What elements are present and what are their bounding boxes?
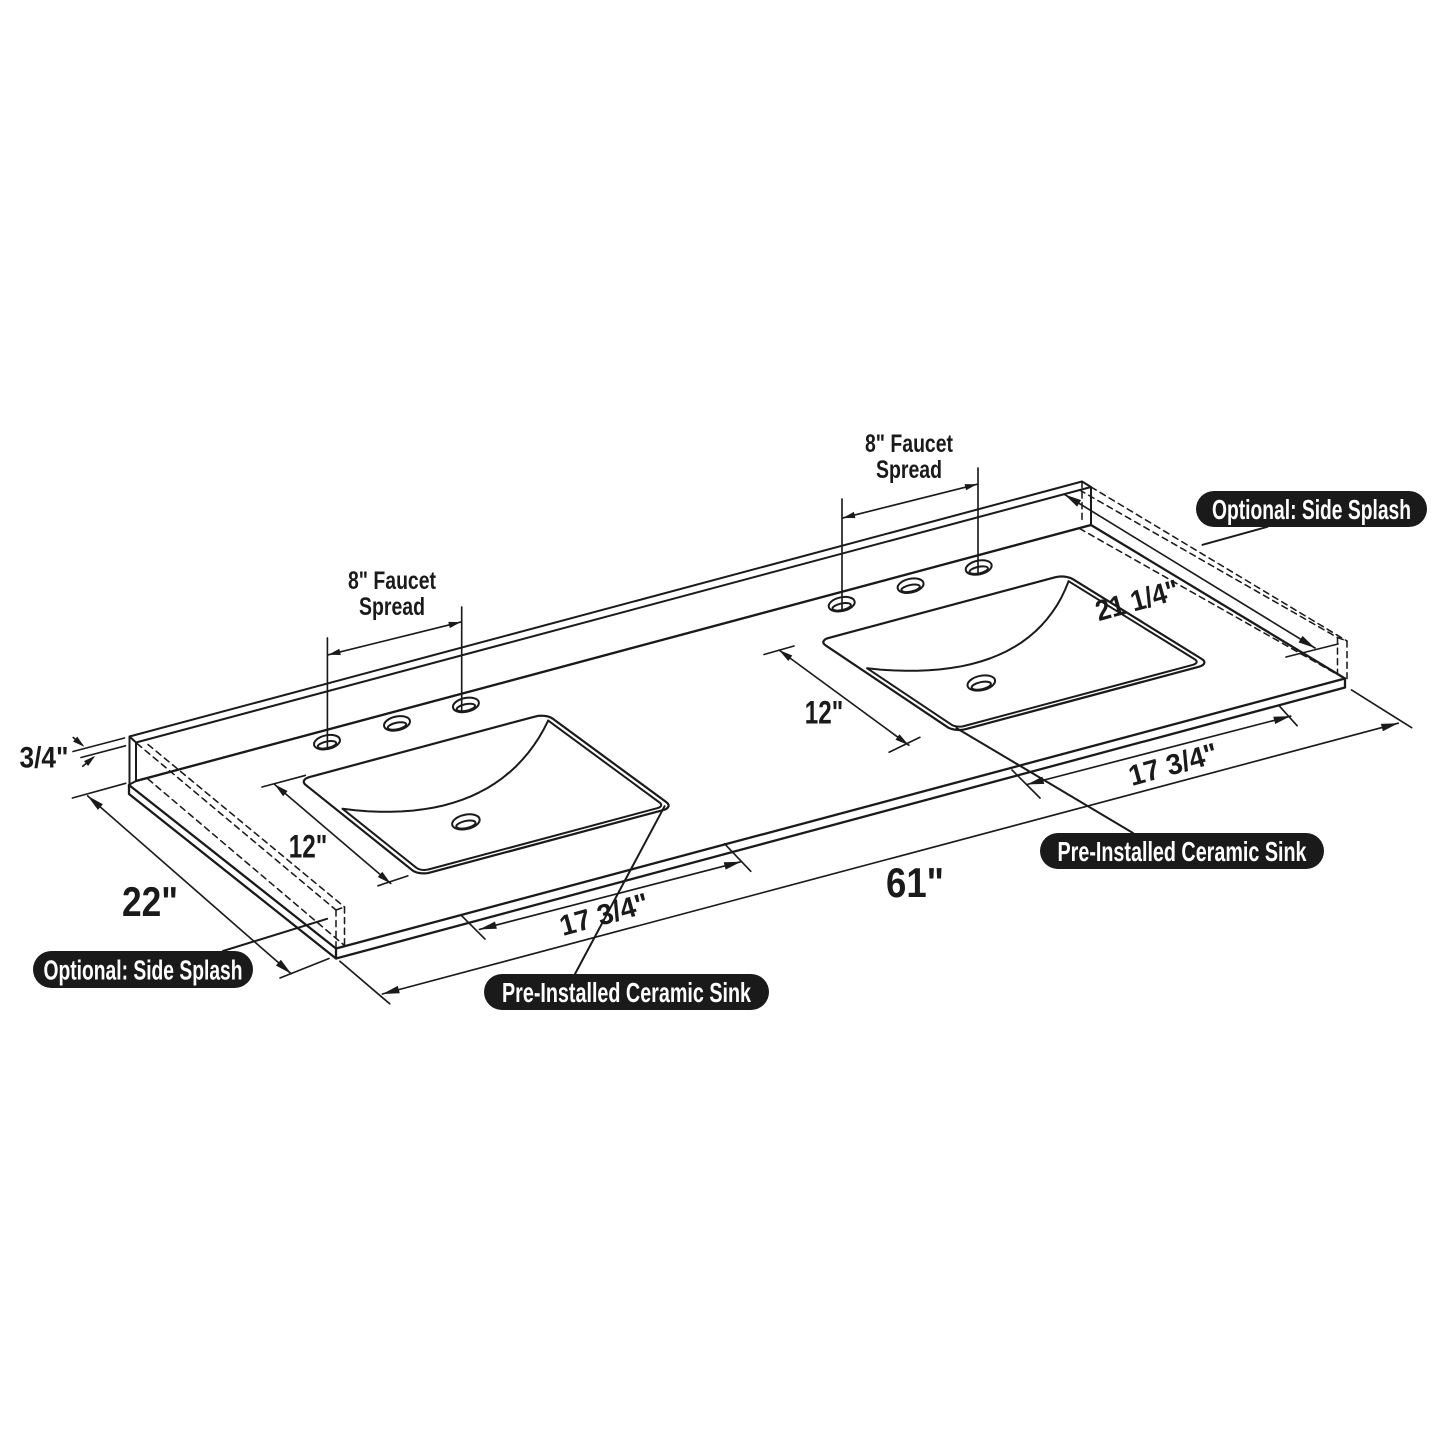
svg-text:Optional: Side Splash: Optional: Side Splash: [44, 954, 243, 985]
svg-text:Optional: Side Splash: Optional: Side Splash: [1212, 494, 1411, 525]
svg-text:Pre-Installed Ceramic Sink: Pre-Installed Ceramic Sink: [502, 977, 751, 1008]
svg-text:8" Faucet: 8" Faucet: [865, 430, 954, 458]
svg-text:12": 12": [289, 828, 328, 864]
svg-text:Pre-Installed Ceramic Sink: Pre-Installed Ceramic Sink: [1058, 836, 1307, 867]
svg-text:22": 22": [122, 878, 178, 925]
svg-text:8" Faucet: 8" Faucet: [348, 567, 437, 595]
svg-text:61": 61": [886, 859, 944, 906]
svg-text:Spread: Spread: [359, 593, 425, 621]
svg-text:3/4": 3/4": [20, 742, 69, 775]
svg-text:Spread: Spread: [876, 456, 942, 484]
svg-text:12": 12": [805, 694, 844, 730]
